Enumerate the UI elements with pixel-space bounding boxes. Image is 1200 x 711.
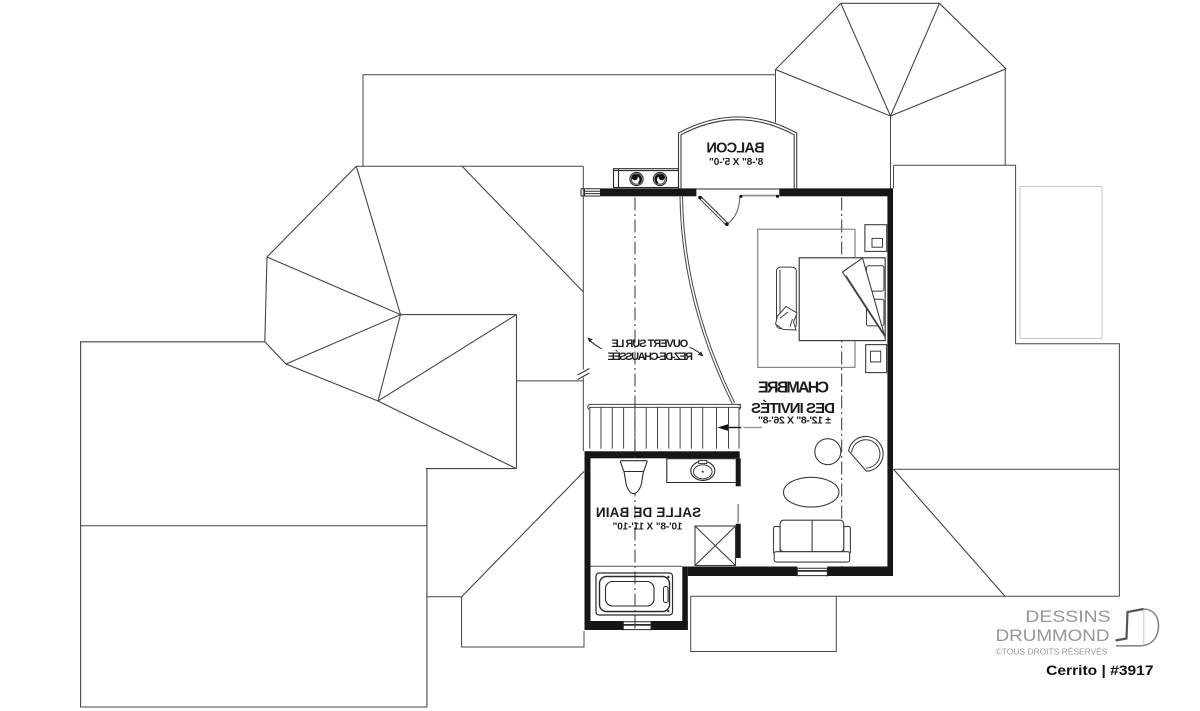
svg-text:10'-8" X 11'-10": 10'-8" X 11'-10" — [612, 521, 682, 532]
svg-text:SALLE DE BAIN: SALLE DE BAIN — [596, 505, 701, 520]
svg-text:8'-8" X 5'-0": 8'-8" X 5'-0" — [709, 157, 763, 168]
svg-text:DRUMMOND: DRUMMOND — [996, 627, 1110, 645]
svg-text:Cerrito | #3917: Cerrito | #3917 — [1046, 663, 1153, 678]
svg-text:DESSINS: DESSINS — [1025, 608, 1110, 626]
svg-text:BALCON: BALCON — [706, 141, 764, 157]
svg-text:©TOUS DROITS RÉSERVÉS: ©TOUS DROITS RÉSERVÉS — [996, 647, 1108, 657]
svg-text:± 12'-8" X 26'-8": ± 12'-8" X 26'-8" — [758, 415, 831, 427]
svg-text:REZ-DE-CHAUSSÉE: REZ-DE-CHAUSSÉE — [608, 350, 694, 363]
svg-text:CHAMBRE: CHAMBRE — [758, 379, 829, 396]
svg-text:OUVERT SUR LE: OUVERT SUR LE — [611, 338, 688, 350]
